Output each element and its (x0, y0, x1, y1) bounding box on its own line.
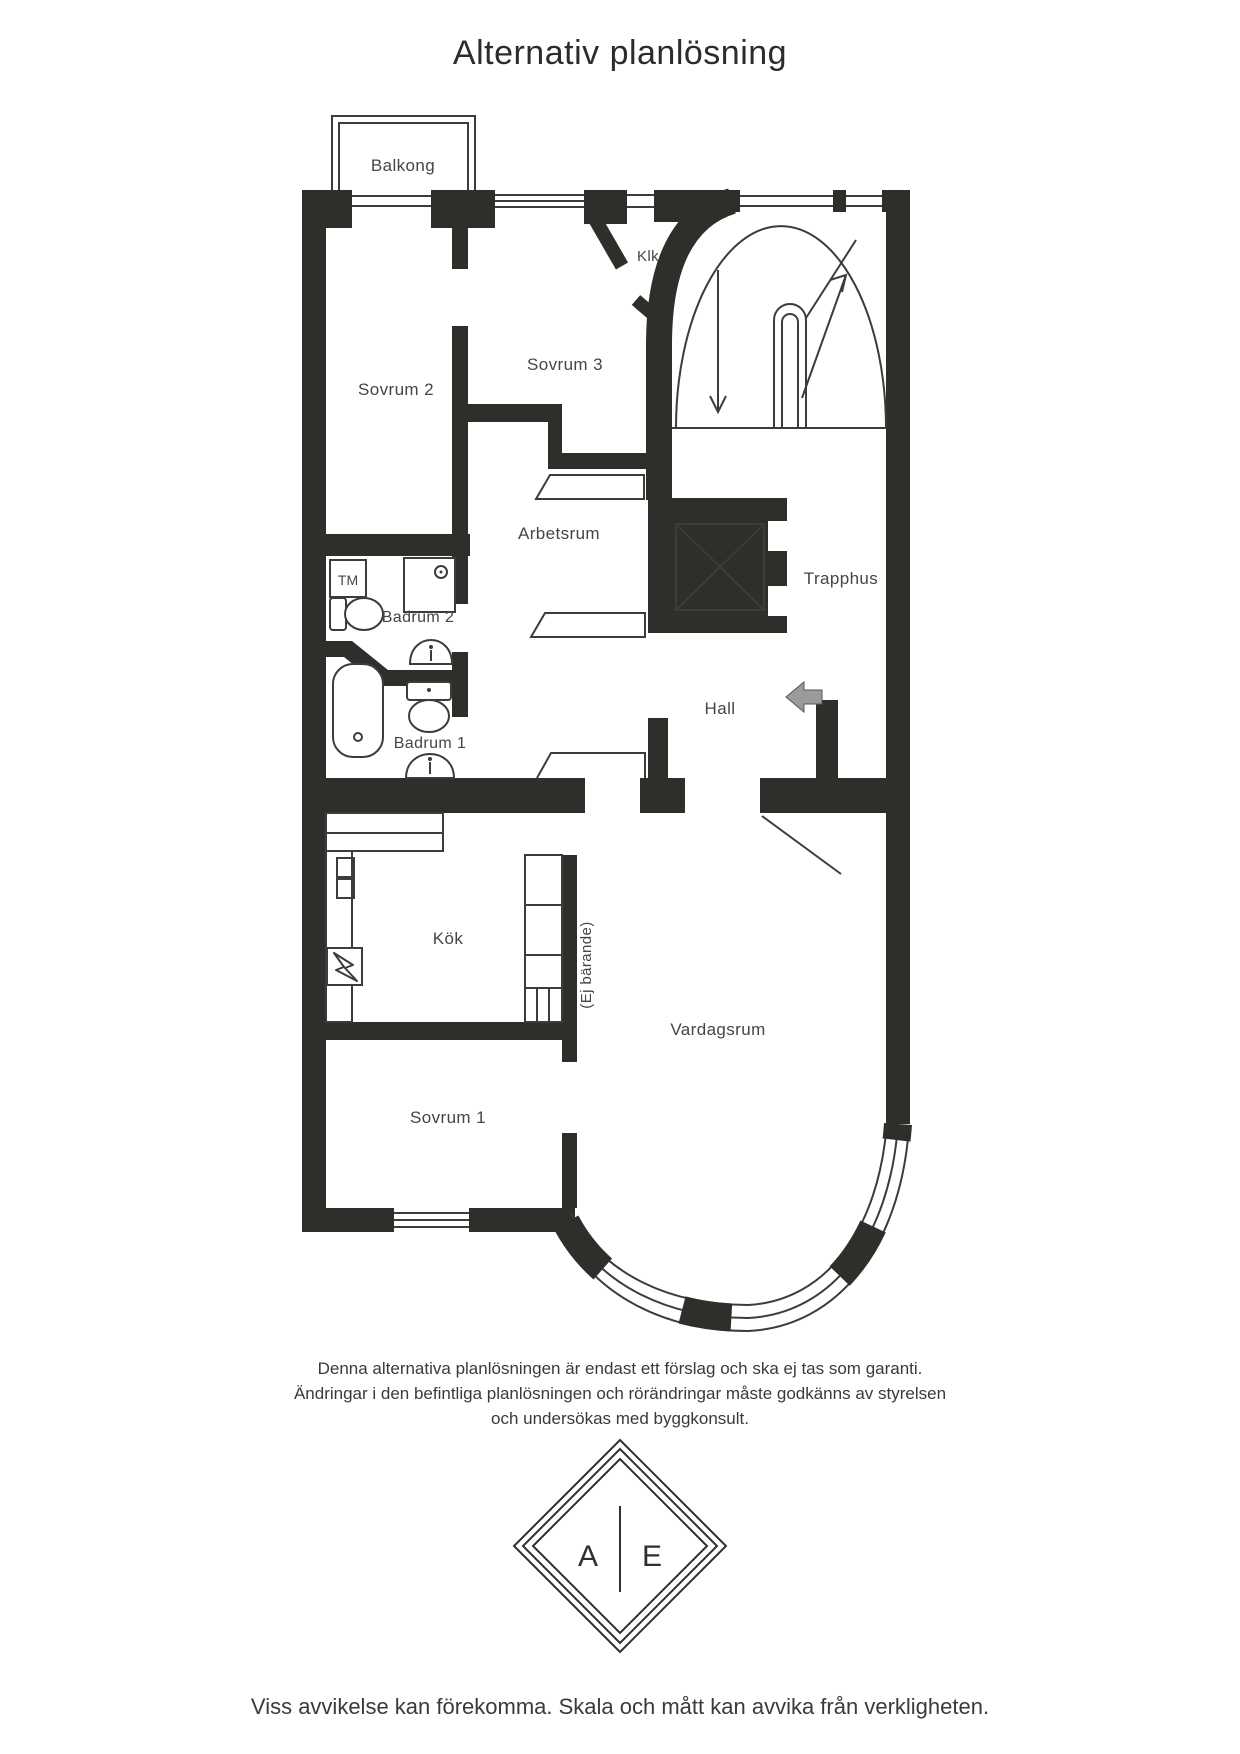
room-label-balkong: Balkong (371, 156, 435, 175)
footnote-text: Viss avvikelse kan förekomma. Skala och … (0, 1694, 1240, 1720)
toilet-badrum1 (407, 682, 451, 732)
kitchen-cabinets (525, 855, 562, 1022)
logo-letter-right: E (642, 1540, 662, 1573)
vardagsrum-door-leaf (762, 816, 841, 874)
disclaimer-line-2: Ändringar i den befintliga planlösningen… (0, 1381, 1240, 1406)
disclaimer-line-1: Denna alternativa planlösningen är endas… (0, 1356, 1240, 1381)
agency-logo: A E (514, 1440, 726, 1652)
kitchen-counter (326, 813, 443, 1022)
room-label-badrum1: Badrum 1 (394, 735, 467, 752)
elevator (648, 498, 787, 633)
bathtub (333, 664, 383, 757)
page: Alternativ planlösning (0, 0, 1240, 1754)
room-label-sovrum3: Sovrum 3 (527, 355, 603, 374)
stair-up-arrow (802, 275, 846, 398)
bay-window (561, 1122, 909, 1331)
room-label-vardagsrum: Vardagsrum (670, 1020, 765, 1039)
sink-badrum2 (410, 640, 452, 664)
room-label-sovrum2: Sovrum 2 (358, 380, 434, 399)
label-ej-barande: (Ej bärande) (578, 921, 595, 1008)
floorplan-svg: Balkong Klk Sovrum 2 Sovrum 3 Arbetsrum … (0, 0, 1240, 1754)
room-label-hall: Hall (705, 699, 736, 718)
door-outlines (531, 475, 645, 778)
room-label-sovrum1: Sovrum 1 (410, 1108, 486, 1127)
staircase (672, 226, 886, 428)
disclaimer-text: Denna alternativa planlösningen är endas… (0, 1356, 1240, 1431)
room-label-trapphus: Trapphus (804, 569, 878, 588)
stove (327, 948, 362, 985)
room-label-badrum2: Badrum 2 (382, 609, 455, 626)
room-label-klk: Klk (637, 248, 659, 265)
disclaimer-line-3: och undersökas med byggkonsult. (0, 1406, 1240, 1431)
walls (302, 190, 910, 1232)
shower (404, 558, 455, 612)
label-tm: TM (338, 572, 358, 588)
sink-badrum1 (406, 754, 454, 778)
stair-down-arrow (710, 270, 726, 412)
room-label-kok: Kök (433, 929, 464, 948)
room-label-arbetsrum: Arbetsrum (518, 524, 600, 543)
toilet-badrum2 (330, 598, 383, 630)
logo-letter-left: A (578, 1540, 598, 1573)
